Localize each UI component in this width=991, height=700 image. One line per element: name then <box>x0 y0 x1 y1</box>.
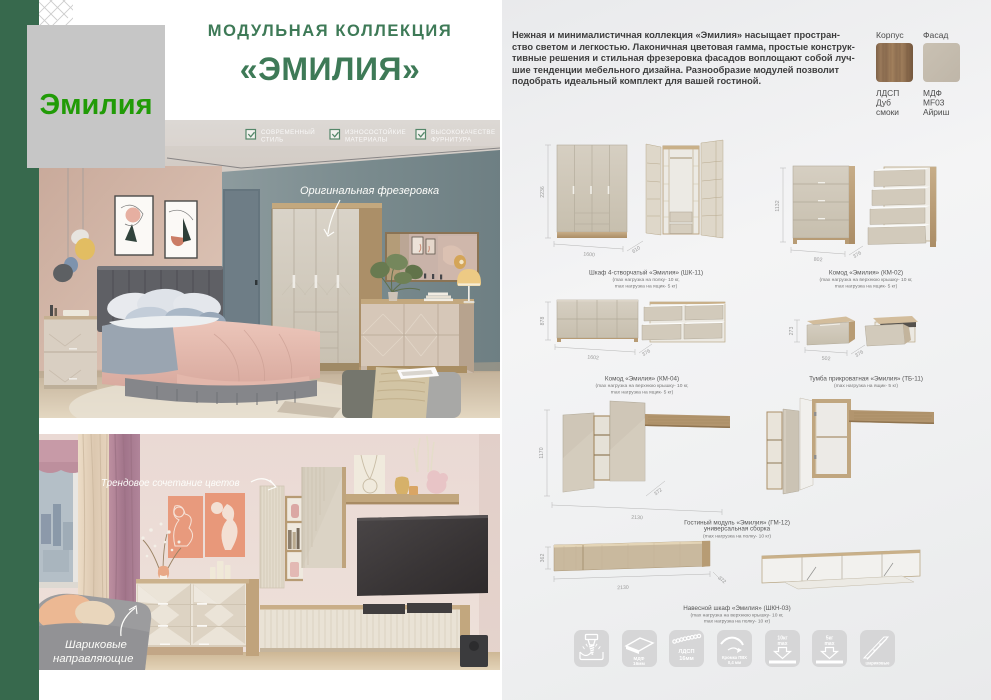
svg-text:МАТЕРИАЛЫ: МАТЕРИАЛЫ <box>345 137 388 144</box>
svg-text:max нагрузка на ящик- 5 кг): max нагрузка на ящик- 5 кг) <box>835 284 898 290</box>
svg-text:1602: 1602 <box>587 355 599 362</box>
svg-text:Шкаф 4-створчатый «Эмилия» (ШК: Шкаф 4-створчатый «Эмилия» (ШК-11) <box>589 269 703 277</box>
svg-text:ФУРНИТУРА: ФУРНИТУРА <box>431 137 472 144</box>
svg-text:Комод «Эмилия» (КМ-04): Комод «Эмилия» (КМ-04) <box>605 376 679 383</box>
svg-text:362: 362 <box>540 554 546 563</box>
svg-text:универсальная сборка: универсальная сборка <box>704 525 771 533</box>
svg-text:Корпус: Корпус <box>876 30 904 40</box>
svg-text:(max нагрузка на ящик- 5 кг): (max нагрузка на ящик- 5 кг) <box>834 383 898 389</box>
svg-text:max нагрузка на ящик- 5 кг): max нагрузка на ящик- 5 кг) <box>615 284 678 290</box>
svg-text:372: 372 <box>716 575 727 585</box>
svg-text:(max нагрузка на полку- 10 кг): (max нагрузка на полку- 10 кг) <box>703 533 771 539</box>
svg-text:МДФ: МДФ <box>923 88 942 98</box>
svg-text:СТИЛЬ: СТИЛЬ <box>261 137 284 144</box>
svg-text:ВЫСОКОКАЧЕСТВЕ: ВЫСОКОКАЧЕСТВЕ <box>431 129 496 136</box>
svg-text:смоки: смоки <box>876 107 899 117</box>
svg-text:2236: 2236 <box>540 186 546 198</box>
svg-text:Трендовое сочетание цветов: Трендовое сочетание цветов <box>101 478 240 489</box>
svg-text:Навесной шкаф «Эмилия» (ШКН-03: Навесной шкаф «Эмилия» (ШКН-03) <box>683 604 791 612</box>
svg-text:610: 610 <box>631 245 642 255</box>
svg-text:max нагрузка на ящик- 5 кг): max нагрузка на ящик- 5 кг) <box>611 390 674 396</box>
svg-text:ЛДСП: ЛДСП <box>679 649 695 655</box>
svg-text:2130: 2130 <box>617 585 629 591</box>
svg-text:(max нагрузка на полку- 10 кг,: (max нагрузка на полку- 10 кг, <box>612 277 679 283</box>
svg-text:16мм: 16мм <box>633 661 646 666</box>
svg-text:направляющие: направляющие <box>53 653 133 665</box>
svg-text:Фасад: Фасад <box>923 30 948 40</box>
svg-text:802: 802 <box>814 257 823 264</box>
svg-text:СОВРЕМЕННЫЙ: СОВРЕМЕННЫЙ <box>261 128 315 136</box>
svg-text:502: 502 <box>822 356 831 363</box>
svg-text:ЛДСП: ЛДСП <box>876 88 899 98</box>
svg-text:(max нагрузка на верхнюю крышк: (max нагрузка на верхнюю крышку- 10 кг, <box>819 277 912 283</box>
svg-text:max нагрузка на полку- 10 кг): max нагрузка на полку- 10 кг) <box>704 619 771 625</box>
svg-text:max: max <box>777 641 787 647</box>
svg-text:шариковые: шариковые <box>865 661 890 666</box>
svg-text:max: max <box>824 641 834 647</box>
svg-text:Дуб: Дуб <box>876 98 891 108</box>
svg-text:Тумба прикроватная «Эмилия» (Т: Тумба прикроватная «Эмилия» (ТБ-11) <box>809 375 923 383</box>
svg-text:1600: 1600 <box>583 252 595 259</box>
svg-text:Айриш: Айриш <box>923 107 950 117</box>
svg-text:(max нагрузка на верхнюю крышк: (max нагрузка на верхнюю крышку- 10 кг, <box>595 383 688 389</box>
svg-text:372: 372 <box>653 487 664 497</box>
svg-text:Оригинальная фрезеровка: Оригинальная фрезеровка <box>300 185 439 197</box>
svg-text:MF03: MF03 <box>923 98 945 108</box>
svg-text:0,4 мм: 0,4 мм <box>728 660 741 665</box>
svg-text:16мм: 16мм <box>679 656 694 662</box>
svg-text:1170: 1170 <box>539 447 545 458</box>
svg-text:2130: 2130 <box>631 515 643 522</box>
svg-text:Комод «Эмилия» (КМ-02): Комод «Эмилия» (КМ-02) <box>829 270 903 277</box>
svg-text:878: 878 <box>540 317 546 326</box>
svg-text:Шариковые: Шариковые <box>65 639 127 651</box>
svg-text:376: 376 <box>641 348 652 358</box>
svg-text:1132: 1132 <box>775 200 781 211</box>
svg-text:ИЗНОСОСТОЙКИЕ: ИЗНОСОСТОЙКИЕ <box>345 128 406 136</box>
svg-text:(max нагрузка на верхнюю крышк: (max нагрузка на верхнюю крышку- 10 кг, <box>690 613 783 619</box>
svg-text:273: 273 <box>789 327 795 336</box>
